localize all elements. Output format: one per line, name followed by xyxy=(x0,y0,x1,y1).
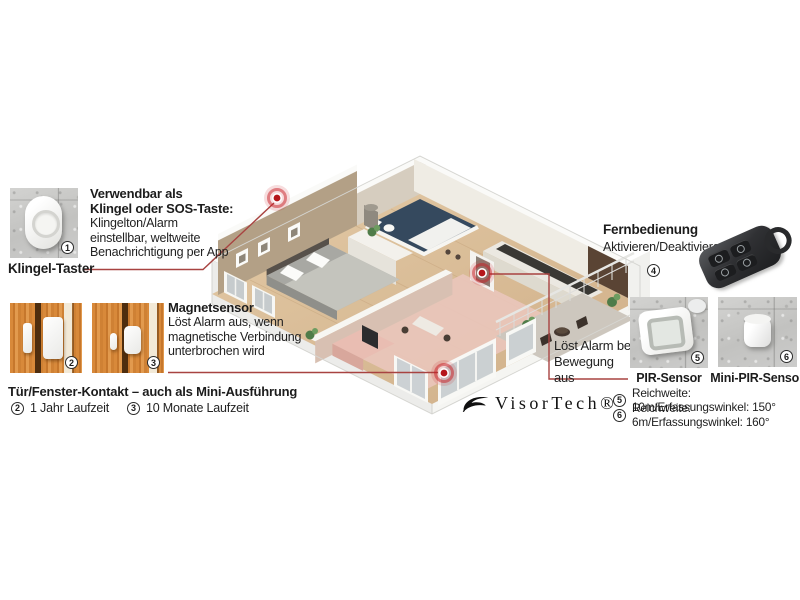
badge-3: 3 xyxy=(127,402,140,415)
alarm-indicator-bedroom xyxy=(264,185,290,211)
mini-pir-label: Mini-PIR-Sensor xyxy=(708,371,800,385)
motion-callout: Löst Alarm bei Bewegung aus xyxy=(554,338,634,386)
pir-label: PIR-Sensor xyxy=(625,371,713,385)
sensor-body-icon xyxy=(43,317,63,359)
remote-photo xyxy=(698,224,798,294)
alarm-indicator-motion xyxy=(469,260,495,286)
mini-pir-sensor-photo: 6 xyxy=(718,297,797,367)
alarm-indicator-window xyxy=(431,360,457,386)
badge-2: 2 xyxy=(11,402,24,415)
pir-spec-row-2: 6 Reichweite: 6m/Erfassungswinkel: 160° xyxy=(613,401,800,429)
mini-door-contact-photo: 3 xyxy=(92,303,164,373)
mini-sensor-body-icon xyxy=(124,326,141,354)
mini-pir-top xyxy=(744,314,771,324)
variant-text: 1 Jahr Laufzeit xyxy=(30,401,109,416)
badge-6: 6 xyxy=(780,350,793,363)
doorbell-label: Klingel-Taster xyxy=(8,261,94,276)
variant-text: 10 Monate Laufzeit xyxy=(146,401,249,416)
door-gap xyxy=(35,303,41,373)
doorbell-photo: 1 xyxy=(10,188,78,258)
door-contact-photo: 2 xyxy=(10,303,82,373)
doorbell-button-icon xyxy=(32,210,60,238)
doorbell-device xyxy=(25,196,62,249)
remote-buttons xyxy=(707,239,759,282)
mini-pir-device xyxy=(744,317,771,347)
magnet-heading: Magnetsensor xyxy=(168,300,303,315)
brand-logo: VisorTech® xyxy=(461,392,617,414)
magnet-description: Magnetsensor Löst Alarm aus, wenn magnet… xyxy=(168,300,303,359)
pir-sensor-photo: 5 xyxy=(630,297,708,368)
magnet-bar-icon xyxy=(23,323,32,353)
pir-lens-icon xyxy=(646,315,686,351)
doorbell-description: Verwendbar als Klingel oder SOS-Taste: K… xyxy=(90,186,250,260)
pir-device xyxy=(638,306,695,356)
brand-swoosh-icon xyxy=(461,392,491,414)
keyring-icon xyxy=(760,223,796,259)
spec-text: Reichweite: 6m/Erfassungswinkel: 160° xyxy=(632,401,800,429)
badge-2: 2 xyxy=(65,356,78,369)
door-contact-title: Tür/Fenster-Kontakt – auch als Mini-Ausf… xyxy=(8,384,297,399)
pir-mount xyxy=(688,299,706,313)
infographic-page: { "brand": { "name": "VisorTech®" }, "do… xyxy=(0,0,800,600)
door-contact-variants: 2 1 Jahr Laufzeit 3 10 Monate Laufzeit xyxy=(11,401,249,416)
badge-1: 1 xyxy=(61,241,74,254)
brand-logo-text: VisorTech® xyxy=(495,393,617,414)
remote-device xyxy=(695,222,785,293)
mini-magnet-bar-icon xyxy=(110,333,117,350)
badge-5: 5 xyxy=(691,351,704,364)
badge-4: 4 xyxy=(647,264,660,277)
badge-3: 3 xyxy=(147,356,160,369)
